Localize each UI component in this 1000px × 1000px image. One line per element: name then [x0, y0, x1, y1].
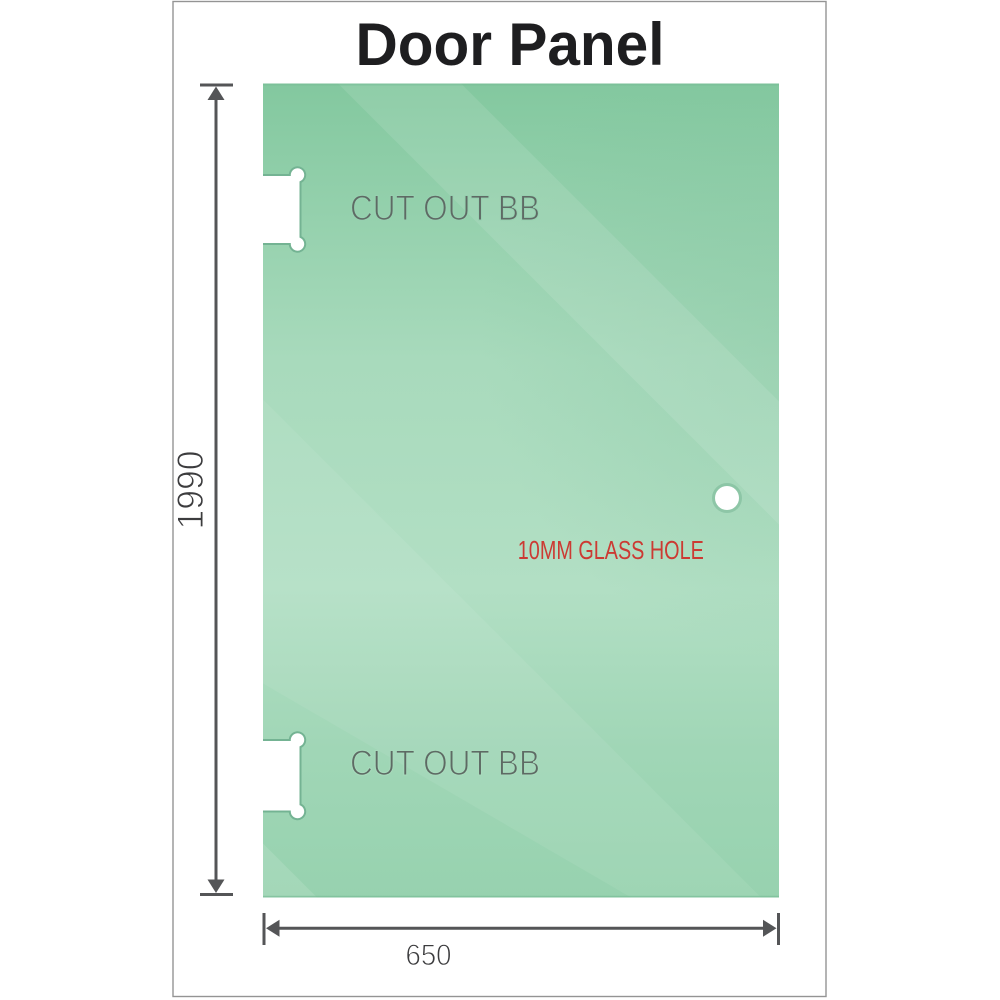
svg-text:CUT OUT BB: CUT OUT BB	[350, 189, 540, 228]
svg-text:10MM GLASS HOLE: 10MM GLASS HOLE	[518, 535, 704, 565]
svg-text:1990: 1990	[170, 451, 211, 530]
svg-text:Door Panel: Door Panel	[356, 11, 665, 78]
svg-text:650: 650	[406, 939, 452, 972]
svg-text:CUT OUT BB: CUT OUT BB	[350, 744, 540, 783]
